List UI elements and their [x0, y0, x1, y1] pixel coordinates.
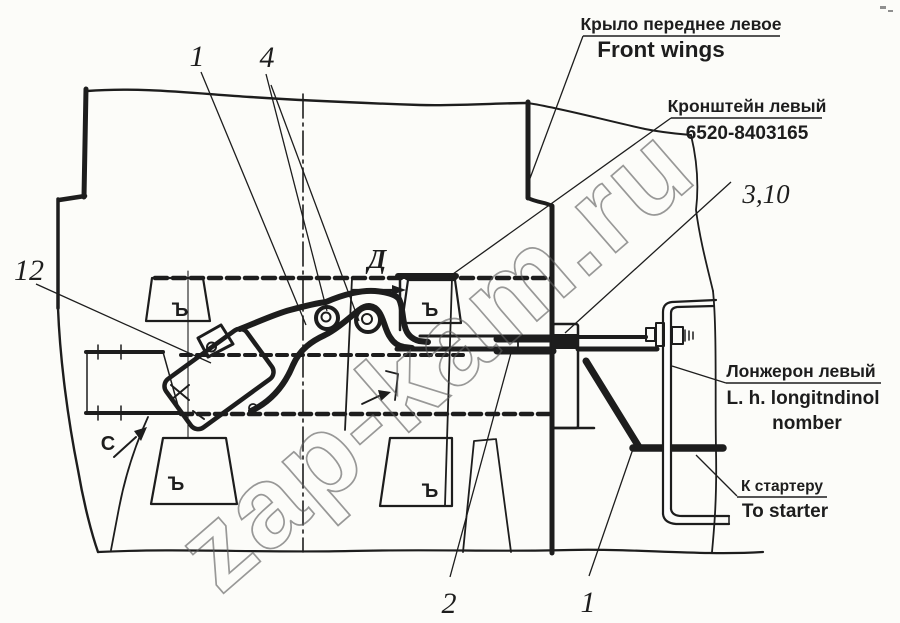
bolt-thread	[685, 330, 693, 341]
rib-bottom-left	[151, 438, 237, 504]
label-starter-en: To starter	[742, 501, 829, 522]
leader-front-wing	[529, 36, 583, 181]
label-front-wing-ru: Крыло переднее левое	[580, 14, 781, 34]
rod-locknut-block	[497, 339, 553, 351]
guide-roller-right-axle	[362, 314, 372, 324]
view-arrow-c: C	[101, 427, 147, 457]
callout-2: 2	[442, 587, 457, 620]
view-d-letter: Д	[365, 244, 388, 274]
label-starter-ru: К стартеру	[741, 478, 823, 495]
torn-right-edge-lower	[712, 291, 716, 552]
callout-1-top: 1	[190, 40, 205, 73]
leader-1-bottom	[589, 446, 634, 576]
rib-mark: Ъ	[172, 300, 189, 321]
guide-roller-left-axle	[322, 313, 331, 322]
rib-column-right	[463, 439, 511, 552]
callout-4: 4	[260, 41, 275, 74]
rib-mark: Ъ	[422, 481, 439, 502]
bolt-nut	[672, 327, 683, 344]
clamp-rod-pass	[553, 334, 578, 349]
torn-right-edge-upper	[691, 135, 713, 291]
detail-arrow	[362, 371, 398, 404]
leader-bracket	[446, 118, 671, 279]
parts-diagram: Ъ Ъ Ъ Ъ	[0, 0, 900, 623]
rib-bottom-right	[380, 438, 452, 506]
leader-4b	[271, 85, 359, 321]
mid-panel-step	[528, 198, 552, 206]
leader-1-top	[201, 72, 306, 325]
starter-rod	[586, 361, 723, 448]
torn-bottom-edge	[98, 550, 763, 553]
label-longeron-ru: Лонжерон левый	[726, 361, 875, 381]
callout-1-bottom: 1	[581, 586, 596, 619]
scan-speck	[888, 10, 893, 12]
view-c-arrowhead	[134, 427, 147, 441]
detail-arrow-line	[362, 396, 379, 404]
callout-3-10: 3,10	[741, 179, 790, 209]
left-edge-lower	[58, 308, 98, 552]
detail-arrowhead	[378, 390, 391, 401]
rib-mark: Ъ	[168, 474, 185, 495]
pedal-pad	[161, 325, 277, 432]
scan-speck	[880, 6, 886, 9]
bracket-foot-inner	[671, 509, 729, 516]
view-c-letter: C	[101, 433, 115, 455]
diagram-canvas: Ъ Ъ Ъ Ъ	[0, 0, 900, 623]
strip-ticks	[98, 345, 121, 420]
leader-4a	[266, 74, 327, 311]
leader-longeron	[672, 366, 726, 383]
view-arrow-d: Д	[352, 244, 406, 295]
label-longeron-en1: L. h. longitndinol	[726, 388, 879, 409]
label-front-wing-en: Front wings	[597, 37, 725, 62]
guide-roller-right	[356, 308, 380, 332]
lower-lever-rod	[251, 306, 412, 411]
left-edge-step	[59, 196, 85, 200]
left-edge-upper	[84, 89, 86, 197]
detail-bracket-shape	[386, 371, 398, 400]
rib-mark: Ъ	[422, 300, 439, 321]
torn-top-edge	[87, 90, 527, 106]
callout-12: 12	[14, 254, 44, 287]
pedal	[161, 325, 277, 433]
panel-clamp	[553, 324, 657, 428]
label-longeron-en2: nomber	[772, 413, 842, 434]
leader-2	[450, 353, 511, 577]
label-bracket-part-number: 6520-8403165	[686, 123, 809, 144]
label-bracket-ru: Кронштейн левый	[668, 96, 827, 116]
leader-3-10	[565, 182, 731, 333]
diagonal-rod	[586, 361, 639, 447]
bolt-head	[646, 328, 655, 341]
